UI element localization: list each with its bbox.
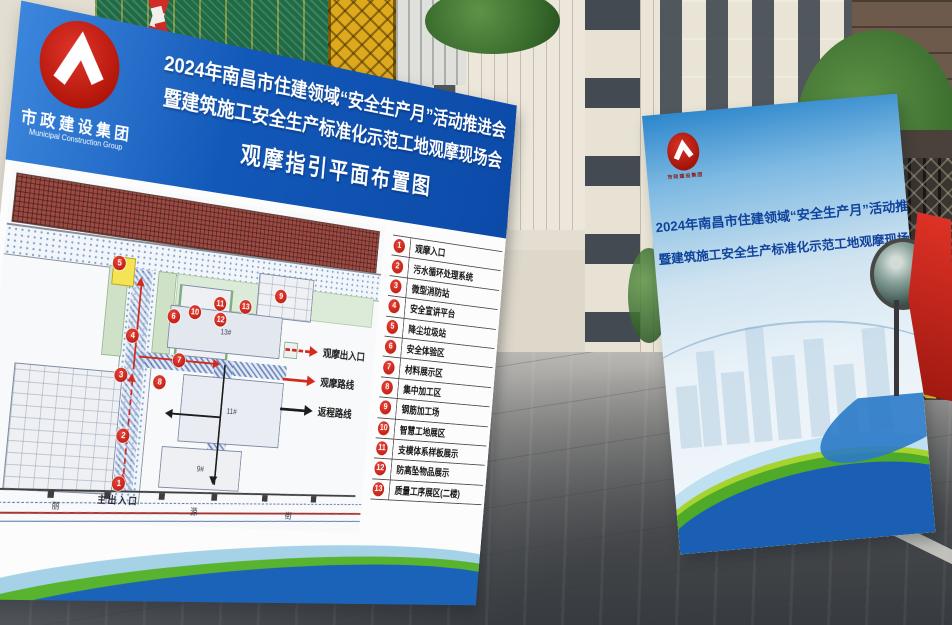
- logo-oval-icon: [666, 131, 701, 172]
- route-arrowhead-up2: [127, 372, 136, 381]
- site-map: 13# 11# 9#: [0, 168, 385, 533]
- logo-peak-icon-small: [666, 131, 701, 172]
- route-legend-row: 返程路线: [279, 401, 369, 423]
- map-badge-8: 8: [153, 374, 167, 389]
- company-logo: 市政建设集团 Municipal Construction Group: [6, 1, 153, 181]
- arrowhead-icon: [304, 405, 313, 416]
- legend-number-badge: 11: [376, 441, 389, 456]
- arrowhead-icon: [309, 346, 318, 358]
- building-label-11: 11#: [181, 404, 281, 420]
- route-arrowhead-left: [164, 408, 172, 418]
- street-name-char: 街: [284, 510, 292, 522]
- billboard-bottom-waves: [0, 524, 481, 605]
- solid-red-arrow-icon: [283, 378, 307, 383]
- dashed-red-arrow-icon: [285, 348, 309, 353]
- legend-number-badge: 9: [379, 400, 392, 415]
- route-legend-row: 观摩出入口: [285, 342, 375, 365]
- street-centerline: [0, 512, 360, 515]
- building-label-9: 9#: [160, 462, 239, 475]
- logo-circle-icon: [36, 13, 124, 115]
- legend-number-badge: 10: [377, 421, 390, 436]
- map-building-9: 9#: [158, 446, 242, 492]
- map-office-complex: [2, 362, 123, 495]
- street-line-outer: [0, 520, 360, 521]
- legend-item-label: 钢筋加工场: [395, 399, 440, 422]
- legend-number-badge: 12: [374, 461, 387, 476]
- legend-number-badge: 4: [388, 299, 400, 314]
- mirror-pole: [894, 300, 899, 396]
- arrowhead-icon: [306, 376, 315, 387]
- map-gate-label: 主出入口: [97, 491, 140, 507]
- logo-name-cn-small: 市政建设集团: [649, 169, 721, 182]
- legend-number-badge: 13: [372, 482, 385, 497]
- legend-list: 1观摩入口2污水循环处理系统3微型消防站4安全宣讲平台5降尘垃圾站6安全体验区7…: [370, 235, 502, 506]
- legend-number-badge: 2: [391, 259, 403, 274]
- street-name-char: 丽: [51, 499, 60, 512]
- street-scene: 市政建设集团 Municipal Construction Group 2024…: [0, 0, 952, 625]
- legend-number-badge: 1: [393, 238, 405, 253]
- map-building-11: 11#: [177, 374, 283, 449]
- logo-peak-icon: [36, 13, 124, 115]
- route-legend-label: 观摩路线: [320, 375, 355, 392]
- site-plan-billboard: 市政建设集团 Municipal Construction Group 2024…: [0, 1, 517, 606]
- legend-item-label: 集中加工区: [397, 379, 442, 402]
- legend-number-badge: 6: [384, 339, 396, 354]
- legend-item-label: 智慧工地展区: [393, 419, 446, 442]
- route-legend: 观摩出入口观摩路线返程路线: [278, 342, 374, 438]
- route-legend-label: 返程路线: [317, 405, 352, 422]
- route-legend-label: 观摩出入口: [322, 346, 365, 364]
- route-arrowhead-right: [213, 359, 221, 369]
- legend-number-badge: 7: [383, 360, 395, 375]
- title-board-waves: [668, 393, 935, 555]
- route-arrowhead-down: [209, 477, 218, 486]
- legend-number-badge: 8: [381, 380, 393, 395]
- legend-number-badge: 3: [390, 279, 402, 294]
- route-legend-row: 观摩路线: [282, 372, 372, 395]
- event-title-billboard: 市政建设集团 2024年南昌市住建领域“安全生产月”活动推进会 暨建筑施工安全生…: [642, 94, 935, 555]
- legend-item-label: 质量工序展区(二楼): [388, 480, 461, 503]
- street-name-char: 源: [189, 505, 197, 517]
- route-arrowhead-up: [136, 277, 145, 287]
- legend-item-label: 防高坠物品展示: [390, 460, 450, 483]
- legend-number-badge: 5: [386, 319, 398, 334]
- solid-black-arrow-icon: [280, 407, 304, 412]
